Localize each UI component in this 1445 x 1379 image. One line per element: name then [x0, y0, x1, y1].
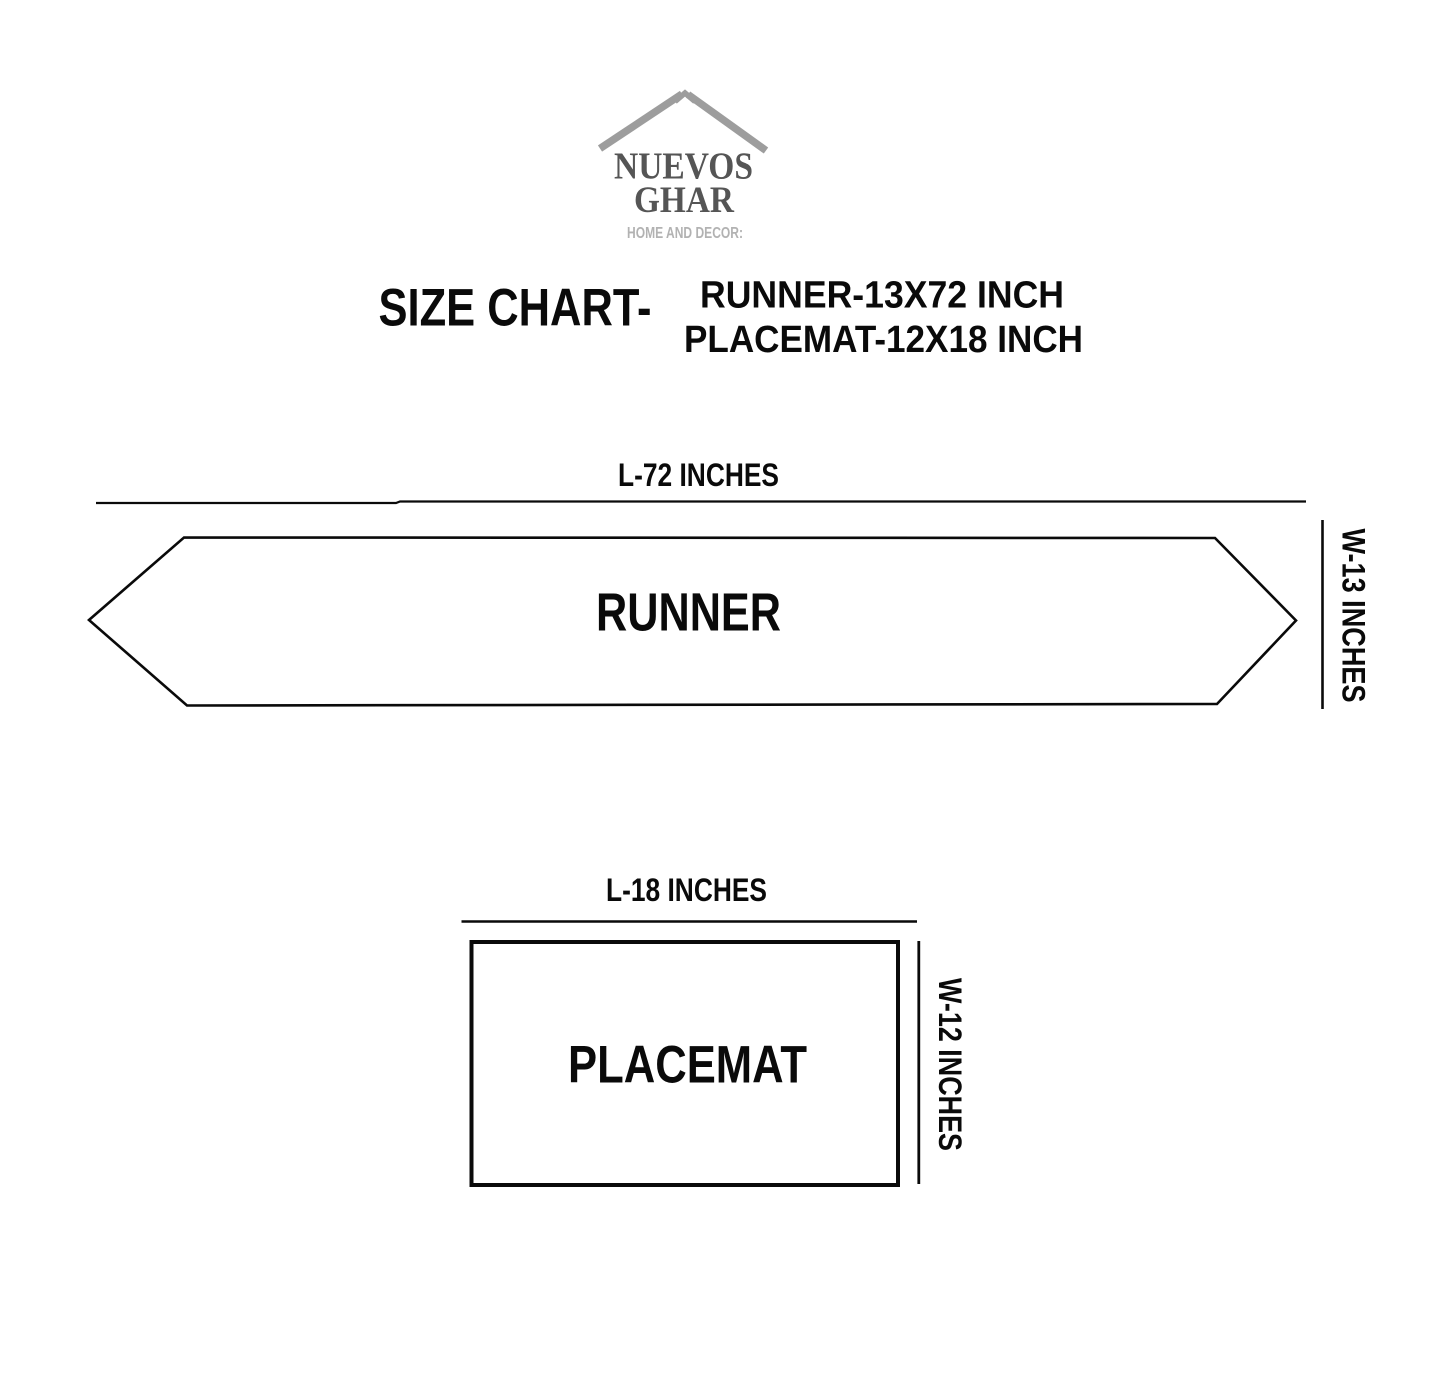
svg-text:L-18 INCHES: L-18 INCHES: [606, 872, 767, 908]
svg-text:PLACEMAT-12X18 INCH: PLACEMAT-12X18 INCH: [684, 319, 1083, 361]
svg-text:PLACEMAT: PLACEMAT: [568, 1036, 807, 1095]
svg-text:RUNNER-13X72 INCH: RUNNER-13X72 INCH: [700, 275, 1064, 317]
svg-text:W-13 INCHES: W-13 INCHES: [1336, 529, 1372, 703]
svg-text:GHAR: GHAR: [634, 180, 735, 221]
svg-text:L-72 INCHES: L-72 INCHES: [618, 457, 779, 493]
svg-text:SIZE CHART-: SIZE CHART-: [379, 279, 652, 338]
svg-text:HOME AND DECOR:: HOME AND DECOR:: [627, 225, 743, 242]
svg-text:W-12 INCHES: W-12 INCHES: [932, 978, 968, 1151]
svg-text:RUNNER: RUNNER: [596, 583, 781, 643]
